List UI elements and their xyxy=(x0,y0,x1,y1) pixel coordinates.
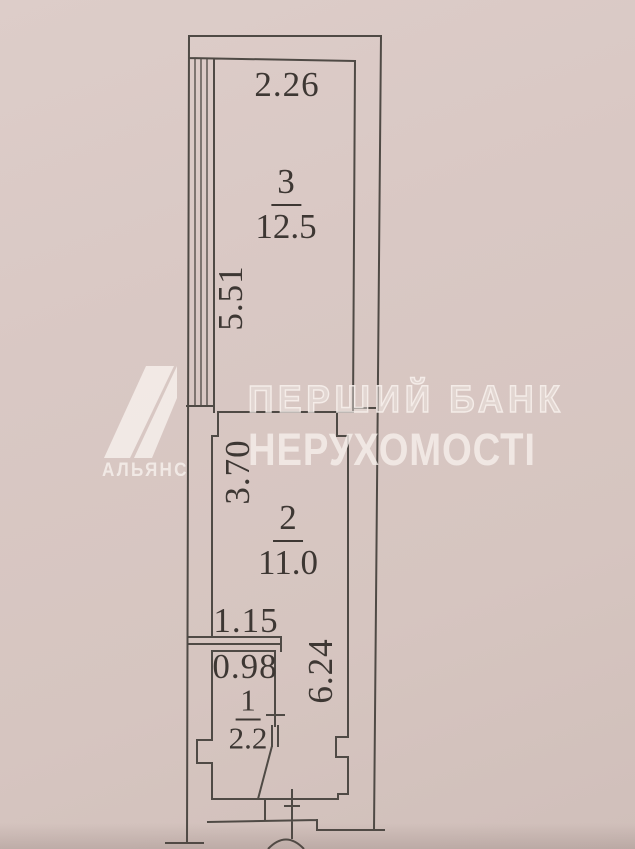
room2-label: 2 11.0 xyxy=(258,500,318,580)
room3-number: 3 xyxy=(277,164,295,199)
floor-plan-drawing xyxy=(0,0,635,849)
dim-hall-width: 1.15 xyxy=(213,601,278,641)
room2-fraction-bar xyxy=(273,540,303,542)
dim-room1-width: 0.98 xyxy=(212,647,277,687)
room3-label: 3 12.5 xyxy=(255,164,316,244)
window-glazing-lines xyxy=(195,58,207,406)
door-swing-arc xyxy=(268,840,304,849)
room1-label: 1 2.2 xyxy=(229,685,268,754)
wall-lines xyxy=(166,36,384,843)
dim-room3-depth: 5.51 xyxy=(211,265,251,330)
dim-room2-depth: 3.70 xyxy=(218,439,258,504)
room1-number: 1 xyxy=(240,685,256,716)
room1-area: 2.2 xyxy=(229,723,268,754)
room3-area: 12.5 xyxy=(255,209,316,244)
dim-corridor-depth: 6.24 xyxy=(301,638,341,703)
room2-area: 11.0 xyxy=(258,545,318,580)
room3-fraction-bar xyxy=(271,204,301,206)
room2-number: 2 xyxy=(279,500,297,535)
floor-plan-photo: АЛЬЯНС ПЕРШИЙ БАНК НЕРУХОМОСТІ 2.26 5.51… xyxy=(0,0,635,849)
dim-room3-width: 2.26 xyxy=(254,65,319,105)
